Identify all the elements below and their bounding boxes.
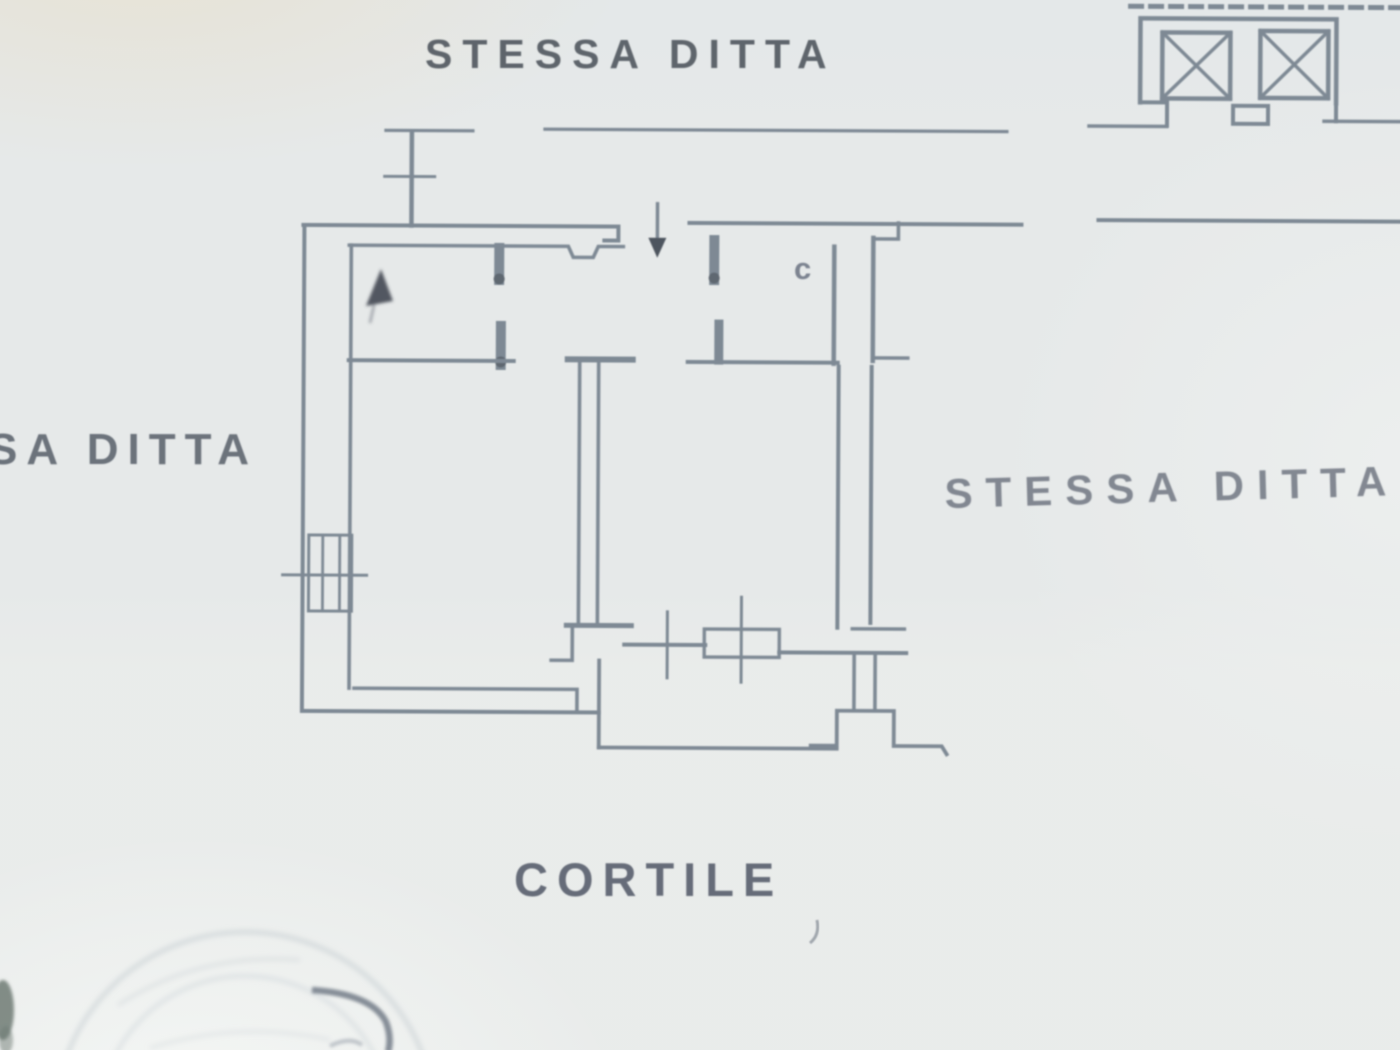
label-sa-ditta-left: SA DITTA [0, 425, 258, 474]
label-cortile: CORTILE [514, 853, 783, 906]
floor-plan-drawing: STESSA DITTA SA DITTA STESSA DITTA CORTI… [0, 0, 1400, 1050]
apartment-plan [282, 202, 1022, 755]
inner-wall-bottom-left [354, 688, 577, 712]
mid-wall-line-1 [578, 361, 579, 624]
outer-wall-right-lower [870, 367, 871, 623]
stair-hatch-dashes [1131, 6, 1400, 7]
stamp-seal [55, 932, 435, 1050]
entrance-arrow-icon [648, 204, 666, 258]
right-room-inner-wall [837, 367, 838, 628]
lift-lobby-rect [1233, 106, 1268, 124]
outer-wall-top-left [303, 225, 618, 241]
pencil-squiggle [810, 920, 818, 943]
window-symbol-left [282, 535, 366, 611]
stub-1-end [494, 273, 505, 284]
door-step-notch [551, 625, 572, 660]
label-stessa-ditta-right: STESSA DITTA [944, 457, 1400, 517]
interior-wall-horizontal-right [688, 362, 838, 363]
lift-shafts-block [1130, 6, 1400, 126]
interior-wall-horizontal-left [349, 360, 514, 361]
outer-wall-left [302, 225, 305, 711]
inner-wall-top [349, 245, 623, 257]
mid-wall-line-2 [597, 361, 598, 624]
right-passage-steps [811, 656, 948, 755]
room-mark-left [366, 269, 393, 323]
lift-shaft-left-cross [1162, 32, 1230, 98]
boundary-line-top-center [545, 129, 1007, 131]
signature-tail [330, 1041, 362, 1046]
outer-wall-top-right [689, 223, 1021, 225]
lift-shaft-right-cross [1260, 31, 1328, 98]
label-stessa-ditta-top: STESSA DITTA [425, 31, 837, 77]
room-label-c: c [794, 251, 811, 286]
left-edge-smudge [0, 980, 14, 1050]
outer-wall-right-upper [873, 238, 874, 361]
passage-double-wall [854, 656, 875, 709]
inner-wall-left [349, 245, 351, 688]
scanned-floor-plan-sheet: STESSA DITTA SA DITTA STESSA DITTA CORTI… [0, 0, 1400, 1050]
boundary-line-right [1098, 220, 1400, 222]
lift-block-foot-left [1140, 102, 1167, 125]
room-c-right-wall [834, 247, 835, 364]
lift-shaft-left [1162, 32, 1230, 98]
boundary-lines [385, 116, 1400, 221]
stamp-arc-hint-2 [150, 1032, 330, 1048]
flue-mark [384, 132, 434, 225]
stub-3-end [709, 273, 720, 284]
outer-wall-bottom-left [302, 711, 599, 713]
threshold-line-right [779, 652, 906, 653]
balcony-bottom-wall [599, 747, 837, 748]
lift-shaft-right [1260, 31, 1328, 98]
